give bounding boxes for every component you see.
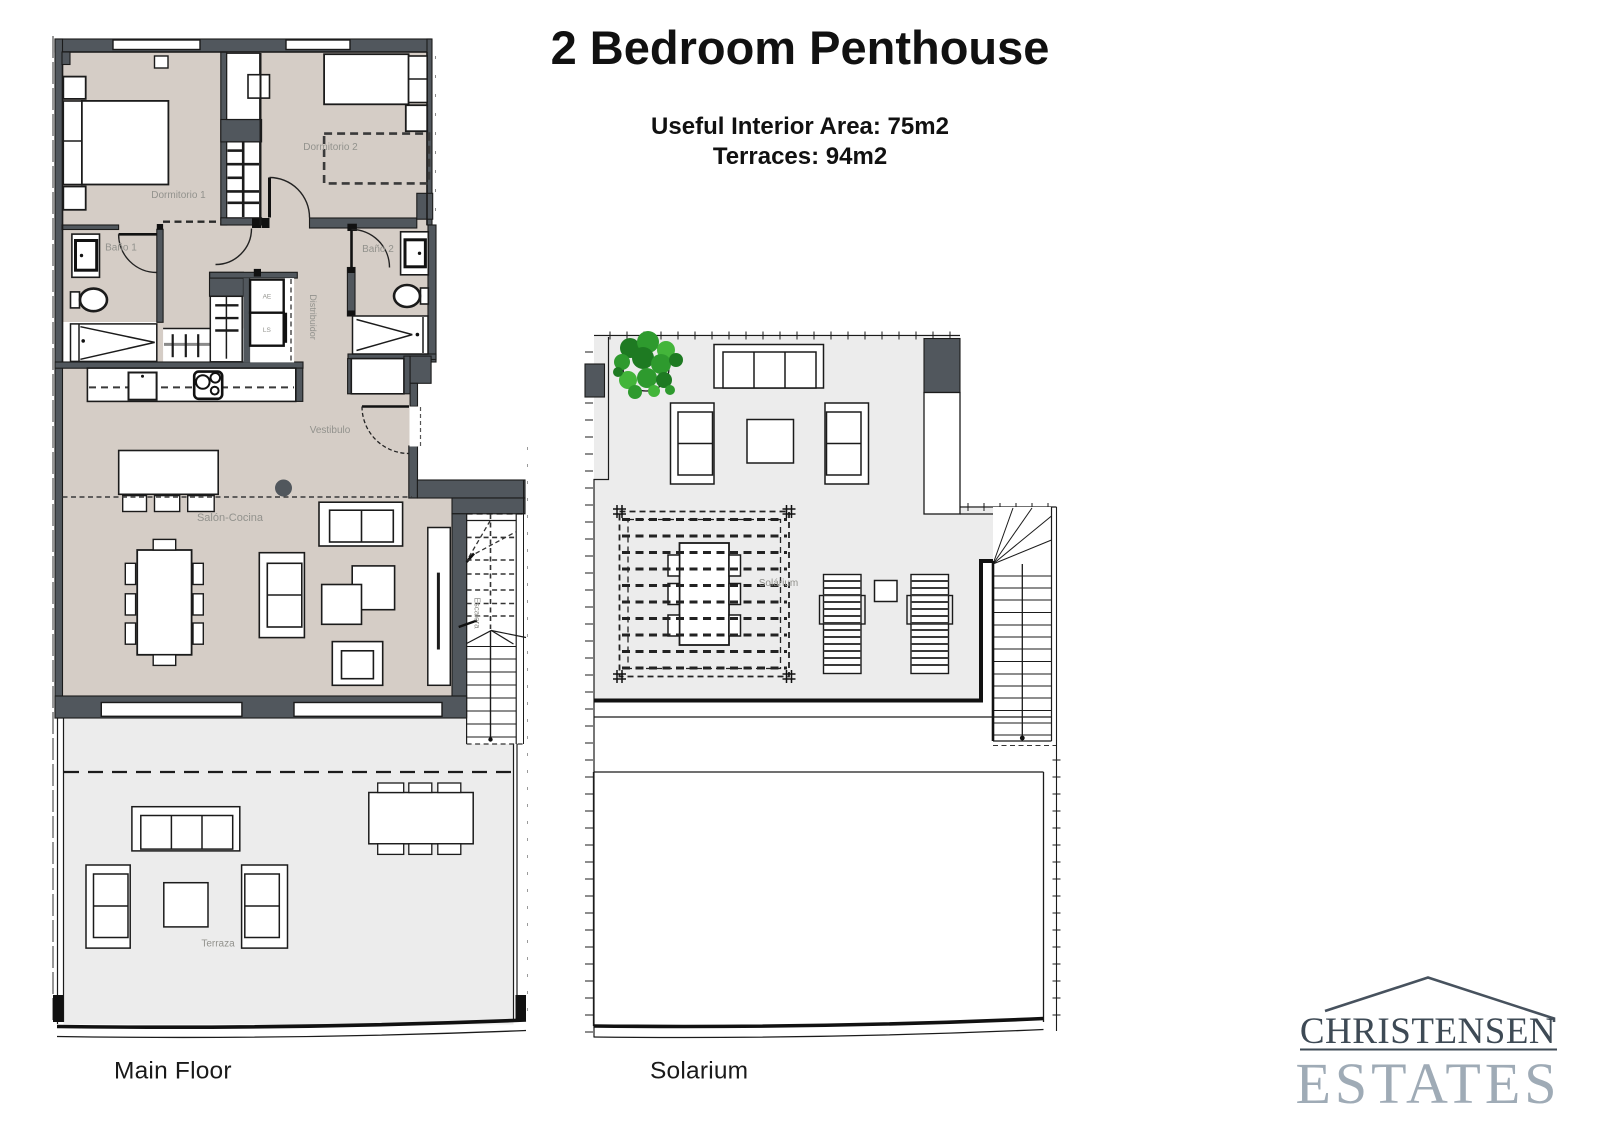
svg-text:Salón-Cocina: Salón-Cocina bbox=[197, 512, 264, 524]
svg-text:Solarium: Solarium bbox=[650, 1058, 748, 1085]
svg-text:Vestibulo: Vestibulo bbox=[310, 425, 351, 436]
svg-text:Dormitorio 2: Dormitorio 2 bbox=[303, 142, 358, 153]
svg-text:Escalera: Escalera bbox=[473, 597, 482, 629]
svg-text:AE: AE bbox=[263, 294, 272, 301]
svg-text:Main Floor: Main Floor bbox=[114, 1058, 232, 1085]
svg-text:2 Bedroom Penthouse: 2 Bedroom Penthouse bbox=[551, 21, 1050, 74]
svg-text:CHRISTENSEN: CHRISTENSEN bbox=[1300, 1011, 1556, 1052]
svg-text:Dormitorio 1: Dormitorio 1 bbox=[151, 190, 206, 201]
svg-text:ESTATES: ESTATES bbox=[1295, 1051, 1560, 1116]
svg-text:LS: LS bbox=[263, 327, 272, 334]
svg-text:Distribuidor: Distribuidor bbox=[308, 294, 318, 340]
svg-text:Baño 2: Baño 2 bbox=[362, 244, 394, 255]
svg-text:Useful Interior Area: 75m2: Useful Interior Area: 75m2 bbox=[651, 113, 949, 140]
svg-text:Terraza: Terraza bbox=[201, 939, 235, 950]
svg-text:Terraces: 94m2: Terraces: 94m2 bbox=[713, 143, 887, 170]
svg-text:Baño 1: Baño 1 bbox=[105, 243, 137, 254]
svg-text:Solárium: Solárium bbox=[759, 578, 798, 589]
